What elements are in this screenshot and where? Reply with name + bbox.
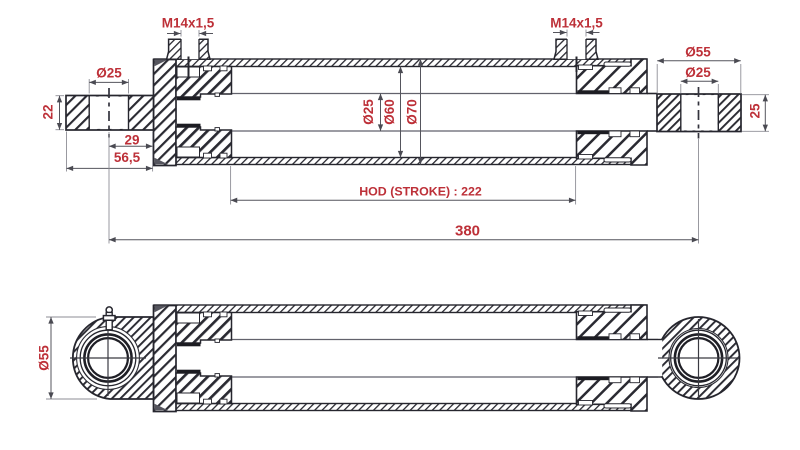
svg-text:HOD (STROKE) : 222: HOD (STROKE) : 222	[359, 185, 482, 199]
svg-text:22: 22	[41, 104, 56, 119]
svg-text:M14x1,5: M14x1,5	[162, 16, 215, 31]
svg-text:Ø60: Ø60	[382, 99, 397, 125]
svg-text:Ø55: Ø55	[685, 45, 711, 60]
svg-text:Ø55: Ø55	[37, 345, 52, 371]
svg-text:Ø70: Ø70	[405, 99, 420, 125]
svg-text:Ø25: Ø25	[685, 65, 711, 80]
svg-text:25: 25	[748, 103, 763, 119]
svg-text:Ø25: Ø25	[361, 99, 376, 125]
svg-text:Ø25: Ø25	[96, 66, 122, 81]
svg-text:M14x1,5: M14x1,5	[550, 16, 603, 31]
svg-text:29: 29	[124, 133, 139, 148]
svg-text:380: 380	[455, 223, 480, 240]
svg-text:56,5: 56,5	[114, 150, 141, 165]
